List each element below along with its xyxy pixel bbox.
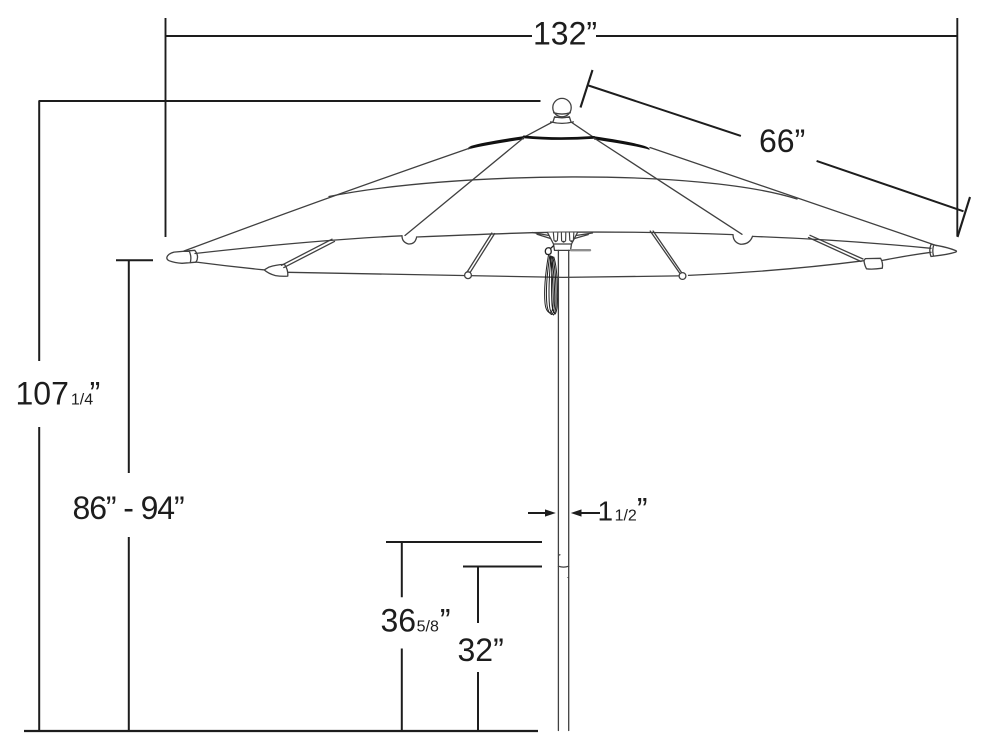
svg-text:11/2”: 11/2” <box>598 491 648 527</box>
svg-text:86” - 94”: 86” - 94” <box>73 490 184 526</box>
svg-text:1071/4”: 1071/4” <box>16 376 101 412</box>
svg-text:66”: 66” <box>759 123 805 159</box>
svg-text:132”: 132” <box>533 16 597 52</box>
svg-text:365/8”: 365/8” <box>381 602 451 638</box>
svg-text:32”: 32” <box>458 632 504 668</box>
